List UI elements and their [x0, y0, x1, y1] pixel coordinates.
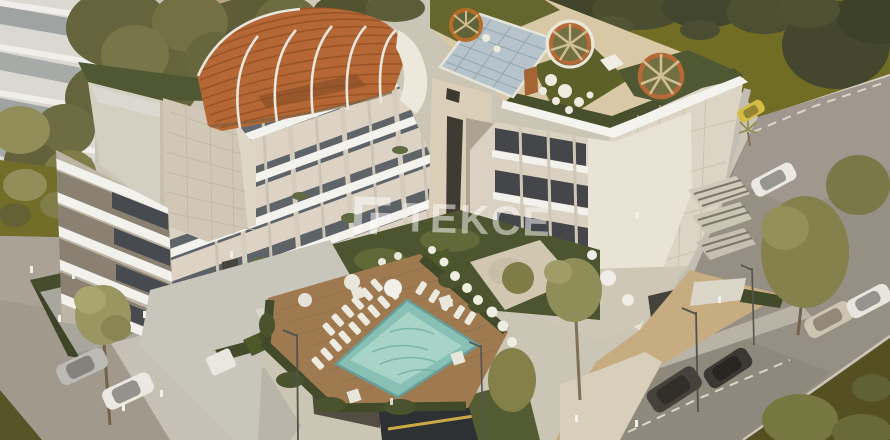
- svg-text:TEKCE: TEKCE: [402, 194, 552, 245]
